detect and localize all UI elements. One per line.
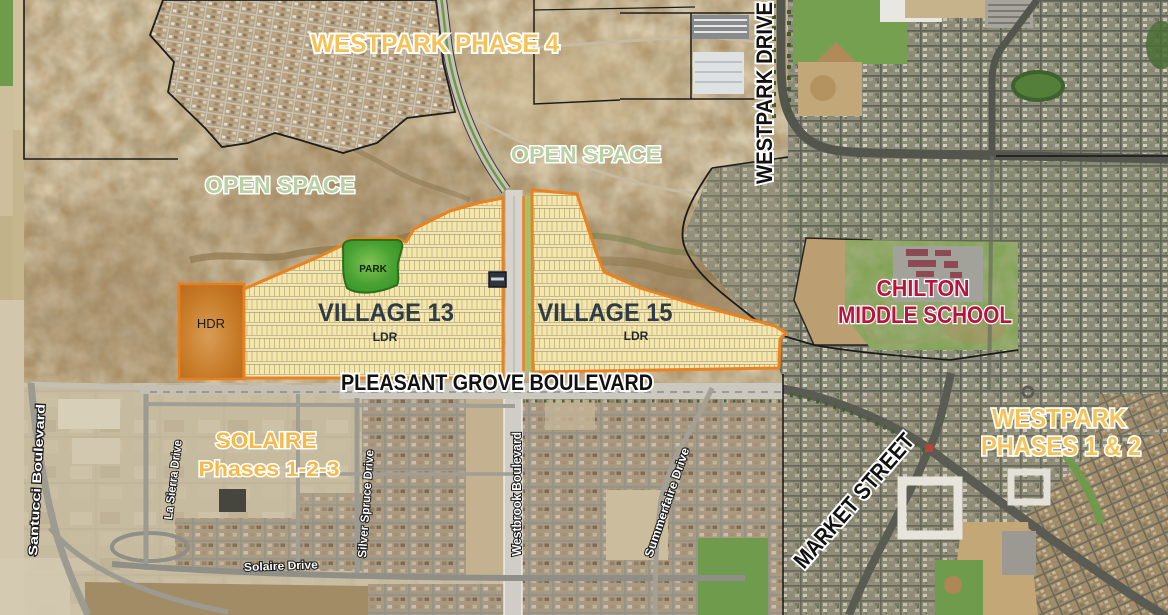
svg-text:WESTPARK PHASE 4: WESTPARK PHASE 4 <box>311 30 559 58</box>
svg-text:OPEN SPACE: OPEN SPACE <box>205 172 355 198</box>
svg-text:HDR: HDR <box>197 316 225 331</box>
svg-text:MIDDLE SCHOOL: MIDDLE SCHOOL <box>838 302 1012 329</box>
svg-text:PHASES 1 & 2: PHASES 1 & 2 <box>981 431 1141 461</box>
svg-text:LDR: LDR <box>373 330 398 344</box>
svg-text:VILLAGE 13: VILLAGE 13 <box>318 299 454 327</box>
svg-text:PLEASANT GROVE BOULEVARD: PLEASANT GROVE BOULEVARD <box>341 370 653 395</box>
svg-text:Westbrook Boulevard: Westbrook Boulevard <box>510 432 524 556</box>
svg-text:VILLAGE 15: VILLAGE 15 <box>538 299 673 327</box>
svg-text:LDR: LDR <box>624 329 649 343</box>
svg-text:PARK: PARK <box>359 264 387 275</box>
svg-text:WESTPARK: WESTPARK <box>992 403 1126 433</box>
svg-text:SOLAIRE: SOLAIRE <box>216 428 317 453</box>
svg-text:OPEN SPACE: OPEN SPACE <box>511 142 661 167</box>
svg-text:Phases 1-2-3: Phases 1-2-3 <box>199 458 340 481</box>
svg-text:WESTPARK DRIVE: WESTPARK DRIVE <box>752 2 777 184</box>
svg-text:CHILTON: CHILTON <box>877 275 970 301</box>
